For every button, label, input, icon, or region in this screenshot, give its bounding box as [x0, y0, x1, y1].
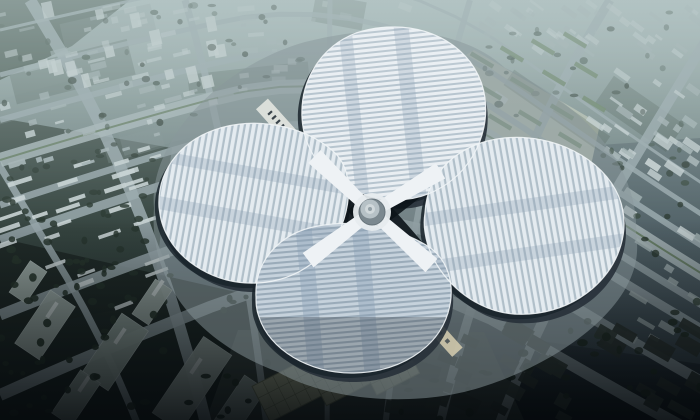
aerial-city-rendering: Aerial rendering of a four-leaf-clover e…	[0, 0, 700, 420]
aerial-rendering-stage: Aerial rendering of a four-leaf-clover e…	[0, 0, 700, 420]
